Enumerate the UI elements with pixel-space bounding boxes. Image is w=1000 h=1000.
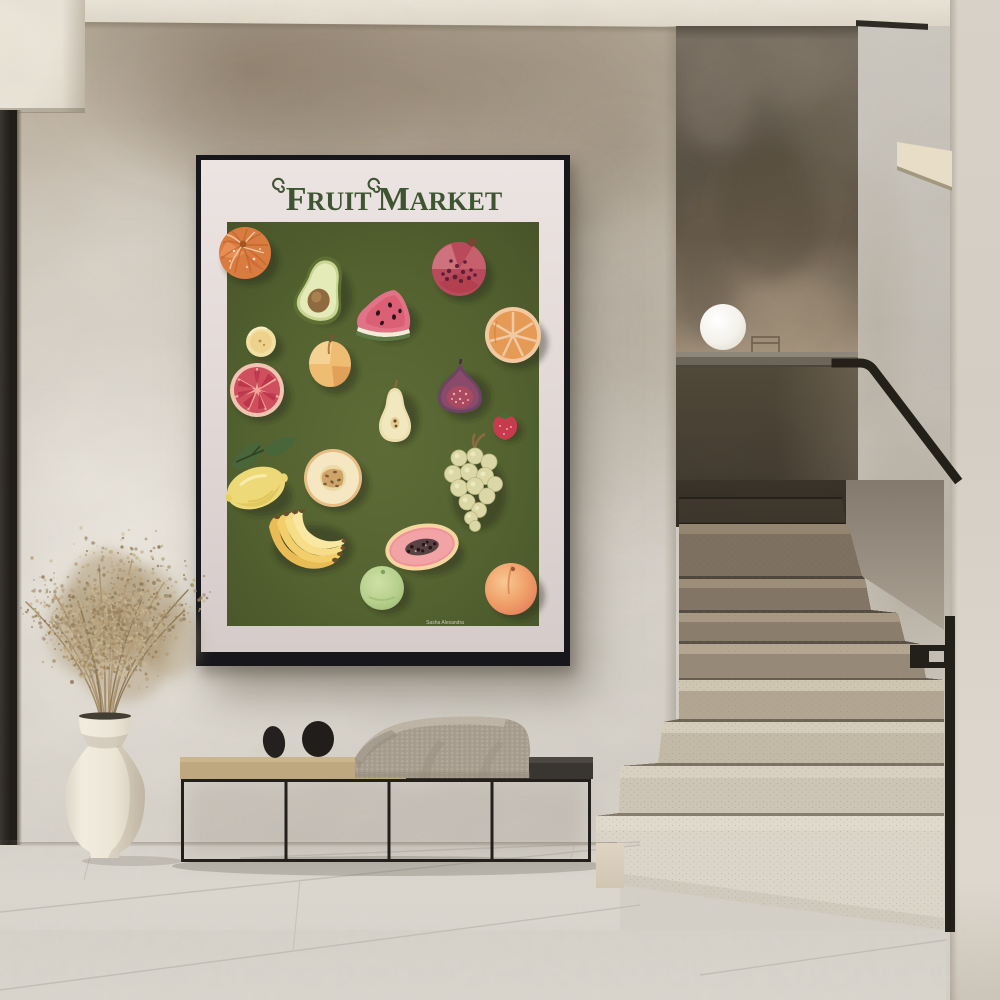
svg-text:Sasha Alexandra: Sasha Alexandra [426,620,464,626]
svg-text:FRUIT MARKET: FRUIT MARKET [286,181,502,218]
